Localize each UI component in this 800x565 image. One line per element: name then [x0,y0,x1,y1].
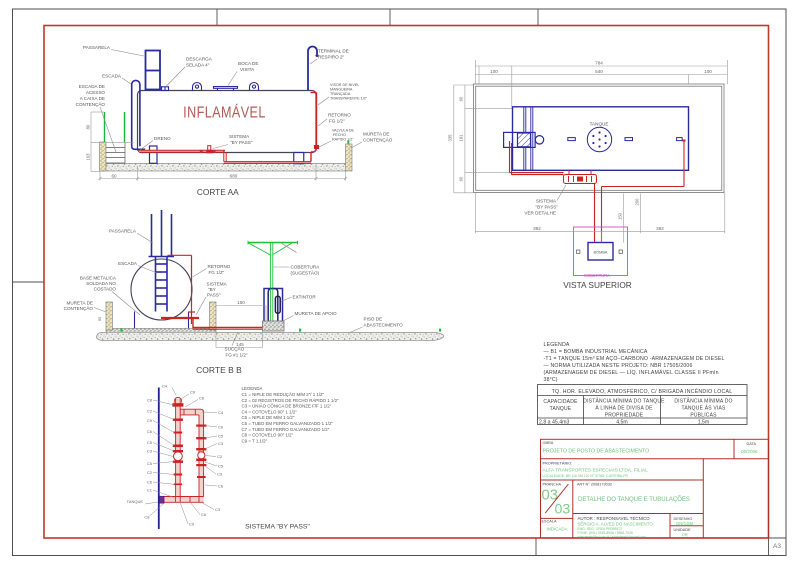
svg-text:CAPACIDADE: CAPACIDADE [543,399,578,405]
svg-text:06/2008: 06/2008 [741,449,758,454]
svg-text:SUCÇÃO: SUCÇÃO [225,346,245,352]
svg-text:A CAIXA DE: A CAIXA DE [80,96,105,101]
svg-text:C9: C9 [147,418,153,423]
svg-text:38°C): 38°C) [544,377,558,383]
svg-text:TANQUE: TANQUE [550,406,572,412]
svg-text:CORTE AA: CORTE AA [197,187,239,197]
svg-text:C3 = UNIÃO CÔNICA DE BRON: C3 = UNIÃO CÔNICA DE BRONZE F/F 1 1/2" [242,404,332,409]
svg-text:392: 392 [656,226,664,231]
svg-text:VISITA: VISITA [240,67,255,72]
svg-text:C6: C6 [147,480,153,485]
svg-text:ACESSO: ACESSO [86,90,106,95]
svg-text:C1 = NIPLE DE REDUÇÃO M/M: C1 = NIPLE DE REDUÇÃO M/M 2"/ 1 1/2" [242,392,325,397]
svg-text:A3: A3 [773,543,781,550]
svg-text:C3: C3 [147,449,153,454]
svg-text:C2: C2 [147,409,153,414]
svg-text:"BY PASS": "BY PASS" [230,140,253,145]
svg-text:ESCADA DE: ESCADA DE [79,84,105,89]
svg-text:PROJETO DE POSTO DE ABASTECIME: PROJETO DE POSTO DE ABASTECIMENTO [543,449,650,455]
svg-text:PASS": PASS" [207,293,221,298]
svg-text:VALVULA DE: VALVULA DE [332,129,355,133]
svg-text:DETALHE DO TANQUE E TUBULAÇÕES: DETALHE DO TANQUE E TUBULAÇÕES [578,496,690,503]
svg-text:(ARMAZENAGEM DE DIESEL — L: (ARMAZENAGEM DE DIESEL — LÍQ. INFLAMÁVEL… [544,369,719,376]
svg-text:C5: C5 [147,440,153,445]
svg-text:C5: C5 [218,464,224,469]
svg-text:PISO DE: PISO DE [364,317,383,322]
svg-text:LEGENDA: LEGENDA [242,386,263,391]
svg-text:80: 80 [86,124,91,129]
svg-text:DISTÂNCIA MÍNIMA DO: DISTÂNCIA MÍNIMA DO [674,398,732,405]
svg-text:C6: C6 [218,425,224,430]
svg-text:SÉRGIO A. ALVES DO NASCIMENTO: SÉRGIO A. ALVES DO NASCIMENTO [578,522,654,527]
svg-text:C4 = COTOVELO 90° 1 1/2": C4 = COTOVELO 90° 1 1/2" [242,409,298,414]
svg-text:À LINHA DE DIVISA DE: À LINHA DE DIVISA DE [595,405,653,412]
svg-text:RETORNO: RETORNO [208,264,231,269]
svg-text:60: 60 [459,96,464,101]
svg-text:100: 100 [490,69,498,74]
svg-text:C2: C2 [147,470,153,475]
svg-text:MURETA DE: MURETA DE [363,132,389,137]
svg-text:163: 163 [86,153,91,161]
svg-text:COSTADO: COSTADO [94,287,117,292]
svg-text:SISTEMA: SISTEMA [229,134,250,139]
svg-text:C9: C9 [217,472,223,477]
svg-text:TANQUE: TANQUE [127,499,144,504]
svg-text:C9 = T 1.1/2": C9 = T 1.1/2" [242,438,268,443]
svg-text:TRANSPARENTE 1/2": TRANSPARENTE 1/2" [330,97,368,101]
svg-text:C7 = TUBO EM FERRO GALVAN: C7 = TUBO EM FERRO GALVANIZADO 1/2" [242,427,330,432]
svg-text:60: 60 [111,173,117,178]
svg-text:EXTINTOR: EXTINTOR [293,295,317,300]
svg-text:CONTENÇÃO: CONTENÇÃO [363,137,393,143]
svg-text:C6 = TUBO EM FERRO GALVAN: C6 = TUBO EM FERRO GALVANIZADO 1 1/2" [242,421,334,426]
svg-text:TQ. HOR. ELEVADO, ATMOSFÉRI: TQ. HOR. ELEVADO, ATMOSFÉRICO, C/ BRIGAD… [552,387,733,395]
svg-text:DRENO: DRENO [154,136,171,141]
svg-text:680: 680 [230,173,238,178]
svg-text:FG 1/2": FG 1/2" [329,119,345,124]
svg-text:C8: C8 [147,398,153,403]
svg-text:DATA: DATA [747,442,757,446]
svg-text:LOCALIDADE: BR 116 KM 110 N°: LOCALIDADE: BR 116 KM 110 N° 37361, CURI… [543,474,629,478]
svg-text:ABASTECIMENTO: ABASTECIMENTO [364,323,404,328]
svg-text:sosegatrab@bol.com.br / sosega: sosegatrab@bol.com.br / sosegatrab@hotma… [578,534,647,538]
svg-text:C8: C8 [144,515,150,520]
svg-text:RESPIRO 2": RESPIRO 2" [318,55,345,60]
svg-text:INFLAMÁVEL: INFLAMÁVEL [183,103,266,122]
svg-text:GN/GSM: GN/GSM [676,521,693,526]
svg-text:C6: C6 [201,512,207,517]
svg-text:AUTOR : RESPONSAVEL TÉCNICO: AUTOR : RESPONSAVEL TÉCNICO [578,516,651,521]
svg-text:SISTEMA "BY PASS": SISTEMA "BY PASS" [245,524,310,531]
svg-text:VER DETALHE: VER DETALHE [524,211,556,216]
svg-text:PÚBLICAS: PÚBLICAS [690,412,717,419]
svg-text:UNIDADE: UNIDADE [674,528,692,532]
svg-text:C9: C9 [189,522,195,527]
svg-text:BOCA DE: BOCA DE [238,61,258,66]
svg-text:FG 1/2": FG 1/2" [209,270,225,275]
svg-text:FG #1 1/2": FG #1 1/2" [226,353,248,358]
svg-text:TRANÇADA: TRANÇADA [330,92,351,96]
svg-text:PASSARELA: PASSARELA [83,45,111,50]
svg-text:"BY: "BY [208,287,216,292]
svg-text:PRANCHA: PRANCHA [543,483,562,487]
svg-text:CONTENÇÃO: CONTENÇÃO [64,305,94,311]
svg-text:— NORMA UTILIZADA NESTE PR: — NORMA UTILIZADA NESTE PROJETO: NBR 175… [544,363,693,369]
svg-text:PROPRIETÁRIO:: PROPRIETÁRIO: [543,462,573,466]
svg-text:C8 = COTOVELO 90° 1/2": C8 = COTOVELO 90° 1/2" [242,433,294,438]
svg-text:ALFA TRANSPORTES ESPECIAIS LTD: ALFA TRANSPORTES ESPECIAIS LTDA. FILIAL [543,468,649,474]
svg-text:03: 03 [555,502,571,518]
svg-text:C6: C6 [218,484,224,489]
svg-text:(SUGESTÃO): (SUGESTÃO) [291,270,320,276]
svg-text:540: 540 [595,69,603,74]
svg-text:C1: C1 [147,488,153,493]
svg-text:CORTE B B: CORTE B B [196,365,242,375]
svg-text:335: 335 [448,134,453,142]
svg-text:200: 200 [635,198,640,206]
svg-text:C5: C5 [218,434,224,439]
svg-text:C3: C3 [215,507,221,512]
svg-text:DISTÂNCIA MÍNIMA DO TANQUE: DISTÂNCIA MÍNIMA DO TANQUE [583,398,665,405]
svg-text:C5 = NIPLE DE M/M 1 1/2": C5 = NIPLE DE M/M 1 1/2" [242,415,295,420]
svg-text:392: 392 [533,226,541,231]
svg-text:COBERTURA: COBERTURA [291,265,321,270]
svg-text:C6: C6 [147,429,153,434]
svg-text:BASE METALICA: BASE METALICA [80,276,117,281]
svg-text:ESCALA: ESCALA [542,520,557,524]
svg-text:INDICADA: INDICADA [547,527,568,532]
svg-text:1,5m: 1,5m [698,419,710,425]
svg-text:SISTEMA: SISTEMA [207,282,228,287]
svg-text:C3: C3 [218,441,224,446]
svg-text:784: 784 [595,61,603,66]
svg-text:-T1 = TANQUE 15m³ EM AÇO–CAR: -T1 = TANQUE 15m³ EM AÇO–CARBONO -ARMAZE… [544,356,725,362]
svg-text:2,8 a 45,4m3: 2,8 a 45,4m3 [539,419,569,425]
svg-text:SOLDADA NO: SOLDADA NO [86,281,116,286]
svg-text:ESCADA: ESCADA [118,261,138,266]
svg-text:LEGENDA: LEGENDA [544,342,570,348]
svg-text:C6: C6 [199,396,205,401]
svg-text:PR: PR [682,533,688,538]
svg-text:150: 150 [237,300,245,305]
svg-text:MURETA DE APOIO: MURETA DE APOIO [295,311,337,316]
svg-text:ESCADA: ESCADA [102,74,122,79]
svg-text:COBERTURA: COBERTURA [584,273,610,278]
svg-text:SISTEMA: SISTEMA [536,199,557,204]
svg-text:100: 100 [704,69,712,74]
svg-text:C4: C4 [218,410,224,415]
svg-text:C9: C9 [190,390,196,395]
svg-text:MURETA DE: MURETA DE [67,301,93,306]
svg-text:VISOR DE NIVEL: VISOR DE NIVEL [330,83,359,87]
svg-text:FECHO: FECHO [333,133,346,137]
svg-text:CONTENÇÃO: CONTENÇÃO [76,101,106,107]
svg-text:RAPIDO 1/2": RAPIDO 1/2" [332,138,354,142]
svg-text:C2 = 02 REGISTROS DE FECH: C2 = 02 REGISTROS DE FECHO RÁPIDO 1 1/2" [242,398,340,403]
svg-text:TERMINAL DE: TERMINAL DE [318,49,349,54]
svg-text:BOMBA: BOMBA [593,250,607,255]
svg-text:150: 150 [618,212,623,220]
svg-text:RETORNO: RETORNO [328,113,351,118]
svg-text:"BY PASS": "BY PASS" [536,205,559,210]
svg-text:— B1 = BOMBA INDUSTRIAL M: — B1 = BOMBA INDUSTRIAL MECÂNICA [544,348,648,355]
svg-text:MANGUEIRA: MANGUEIRA [330,88,353,92]
svg-text:TANQUE ÀS VIAS: TANQUE ÀS VIAS [681,405,726,412]
svg-text:60: 60 [459,176,464,181]
svg-text:OBRA: OBRA [543,441,554,445]
svg-text:VISTA SUPERIOR: VISTA SUPERIOR [563,280,632,290]
svg-text:C4: C4 [162,384,168,389]
svg-text:C2: C2 [217,454,223,459]
svg-text:PROPRIEDADE: PROPRIEDADE [605,413,644,419]
svg-text:ART N° 2008173032: ART N° 2008173032 [577,483,612,487]
svg-text:4,5m: 4,5m [616,419,628,425]
svg-text:PASSARELA: PASSARELA [109,229,137,234]
svg-text:C5: C5 [147,461,153,466]
svg-text:90: 90 [98,317,102,321]
svg-text:SELADA 4": SELADA 4" [186,63,210,68]
svg-text:DESCARGA: DESCARGA [186,57,213,62]
svg-text:TANQUE: TANQUE [590,122,609,127]
svg-text:191: 191 [459,134,464,142]
